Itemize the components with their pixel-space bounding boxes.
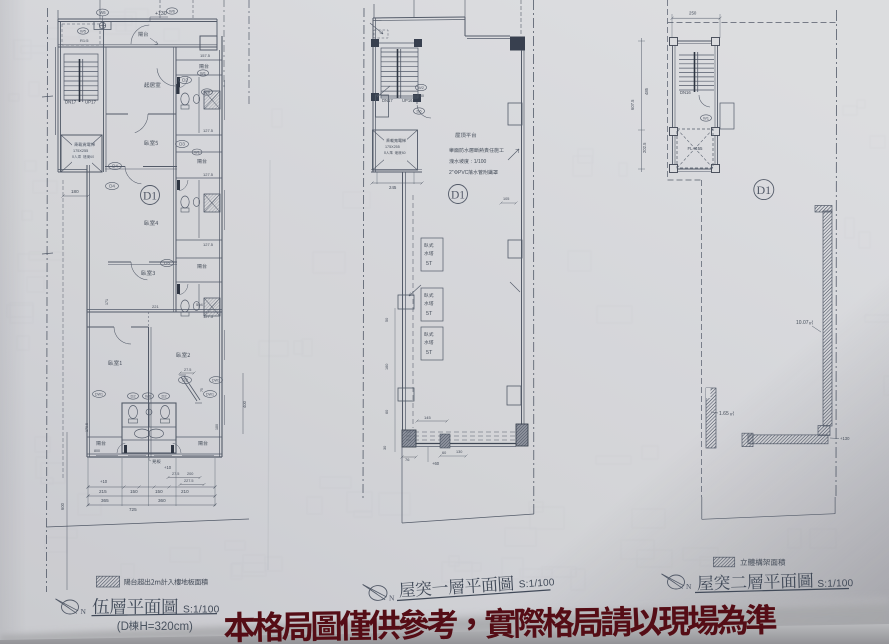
- svg-text:R1:5: R1:5: [80, 38, 89, 43]
- svg-text:W1: W1: [703, 116, 710, 121]
- svg-text:160: 160: [385, 364, 389, 370]
- svg-text:S:1/100: S:1/100: [518, 577, 555, 590]
- svg-text:10.07: 10.07: [796, 320, 809, 326]
- svg-text:W6: W6: [99, 10, 106, 15]
- svg-text:N: N: [81, 607, 87, 616]
- svg-text:W6: W6: [145, 394, 152, 399]
- svg-text:150: 150: [155, 489, 163, 494]
- svg-text:(D: (D: [117, 621, 129, 633]
- svg-text:W1: W1: [194, 151, 200, 155]
- svg-text:D4: D4: [109, 184, 115, 189]
- svg-text:105: 105: [503, 197, 509, 201]
- svg-text:175X255: 175X255: [385, 145, 400, 149]
- svg-text:800: 800: [94, 449, 100, 453]
- svg-text:250: 250: [689, 11, 697, 16]
- svg-text:DN17: DN17: [65, 100, 77, 105]
- svg-text:400: 400: [242, 400, 247, 408]
- svg-text:170.5: 170.5: [85, 423, 89, 432]
- svg-text:485: 485: [644, 87, 649, 95]
- svg-text:202.5: 202.5: [642, 142, 647, 153]
- svg-text:D1: D1: [451, 189, 465, 201]
- svg-text:27.5: 27.5: [184, 368, 191, 372]
- svg-text:H=320cm): H=320cm): [140, 621, 194, 633]
- svg-text:30: 30: [383, 446, 387, 450]
- svg-text:FL+455: FL+455: [687, 146, 703, 151]
- svg-text:607.5: 607.5: [630, 99, 635, 110]
- svg-text:D6: D6: [416, 109, 422, 114]
- svg-text:75: 75: [200, 388, 204, 392]
- svg-text:DW1: DW1: [95, 393, 103, 397]
- svg-text:UP17: UP17: [85, 100, 97, 105]
- svg-text:27.5: 27.5: [172, 472, 179, 476]
- svg-text:UP16: UP16: [402, 98, 413, 103]
- svg-text:200: 200: [187, 472, 193, 476]
- svg-text:+10: +10: [164, 465, 172, 470]
- svg-text:245: 245: [389, 185, 397, 190]
- svg-text:DW1: DW1: [206, 393, 214, 397]
- svg-text:D1: D1: [756, 183, 771, 197]
- svg-text:D3: D3: [164, 261, 170, 266]
- svg-text:+10: +10: [100, 479, 108, 484]
- svg-text:W6: W6: [169, 9, 176, 14]
- svg-text:DW1: DW1: [212, 379, 220, 383]
- svg-text:5T: 5T: [426, 261, 433, 267]
- svg-text:227.5: 227.5: [184, 479, 194, 483]
- svg-text:127.5: 127.5: [203, 314, 214, 319]
- svg-text:W1: W1: [200, 71, 207, 76]
- svg-text:210: 210: [181, 489, 189, 494]
- svg-text:N: N: [389, 594, 395, 603]
- svg-text:5T: 5T: [426, 311, 433, 317]
- svg-text:215: 215: [99, 489, 107, 494]
- svg-text:DN16: DN16: [680, 90, 691, 95]
- svg-text:D4: D4: [112, 164, 118, 169]
- svg-text:180: 180: [215, 424, 219, 430]
- svg-text:W5: W5: [80, 29, 87, 34]
- svg-text:725: 725: [129, 507, 137, 512]
- svg-text:145: 145: [424, 415, 431, 420]
- svg-text:180: 180: [71, 189, 79, 194]
- svg-text:130: 130: [456, 450, 462, 454]
- svg-text:D2: D2: [182, 78, 188, 83]
- svg-text:: 1/100: : 1/100: [471, 159, 487, 165]
- svg-text:171: 171: [105, 299, 109, 305]
- svg-text:127.5: 127.5: [203, 128, 214, 133]
- svg-text:60: 60: [385, 410, 389, 414]
- svg-text:D2: D2: [130, 394, 136, 399]
- svg-text:60: 60: [442, 451, 446, 455]
- svg-text:600: 600: [60, 502, 65, 510]
- svg-text:DN17: DN17: [382, 98, 393, 103]
- svg-text:360: 360: [158, 498, 166, 503]
- svg-text:N: N: [686, 582, 692, 591]
- svg-text:150: 150: [130, 489, 138, 494]
- svg-text:D1: D1: [143, 190, 157, 202]
- svg-text:127.5: 127.5: [203, 242, 214, 247]
- svg-text:D3: D3: [179, 142, 185, 147]
- svg-text:+130: +130: [155, 11, 167, 17]
- svg-text:365: 365: [101, 498, 109, 503]
- svg-text:221: 221: [152, 304, 159, 309]
- svg-text:157.5: 157.5: [200, 53, 211, 58]
- svg-text:ΦPVC: ΦPVC: [454, 170, 469, 176]
- svg-text:R80: R80: [417, 94, 424, 98]
- svg-text:5T: 5T: [426, 350, 433, 356]
- svg-text:+60: +60: [432, 461, 440, 466]
- svg-text:D2: D2: [161, 394, 167, 399]
- svg-text:76: 76: [405, 457, 410, 462]
- svg-text:50: 50: [385, 318, 389, 322]
- svg-text:W2: W2: [418, 85, 425, 90]
- svg-text:127.5: 127.5: [203, 172, 214, 177]
- svg-text:W6: W6: [204, 90, 211, 95]
- svg-text:+130: +130: [840, 436, 850, 441]
- svg-text:1.65: 1.65: [719, 411, 729, 417]
- svg-text:175X255: 175X255: [73, 149, 88, 153]
